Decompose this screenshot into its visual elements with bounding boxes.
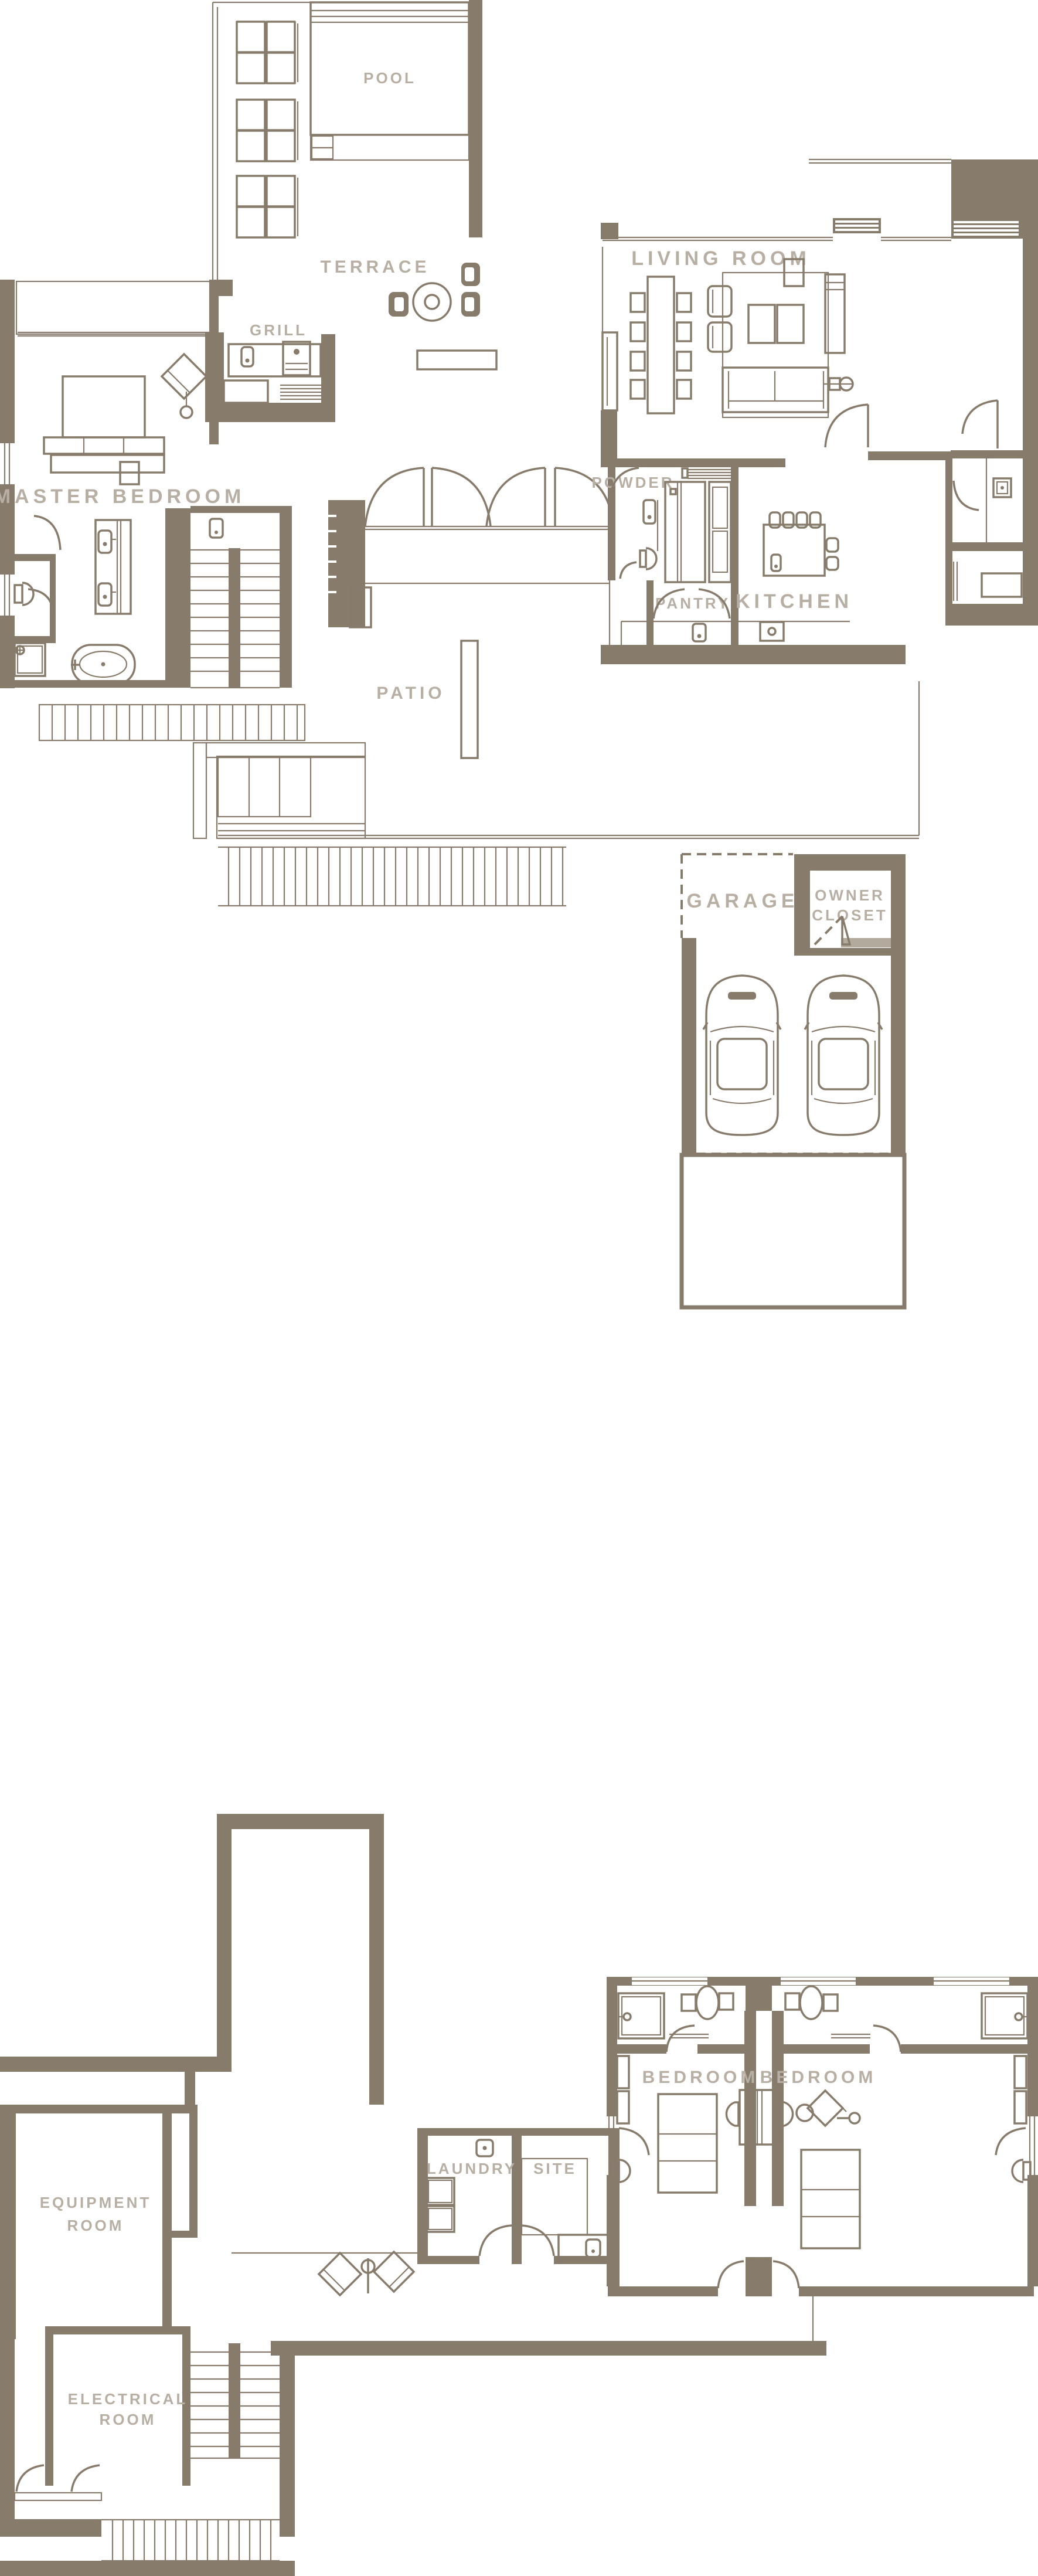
owner-closet-label-line1: OWNER bbox=[815, 886, 885, 904]
owner-closet: OWNER CLOSET bbox=[812, 886, 891, 947]
media-console bbox=[603, 332, 617, 410]
kitchen-island bbox=[764, 525, 825, 576]
light-well bbox=[0, 1814, 384, 2105]
pool: POOL bbox=[311, 2, 469, 160]
bedrooms-block: BEDROOM BEDROOM bbox=[607, 1977, 1038, 2341]
vanity-sink bbox=[800, 1986, 822, 2019]
bed bbox=[658, 2094, 717, 2193]
patio-label: PATIO bbox=[376, 684, 445, 703]
corridor-lounge bbox=[232, 2252, 417, 2295]
stair-to-lower bbox=[217, 756, 365, 838]
counter bbox=[559, 2235, 610, 2258]
driveway bbox=[682, 1155, 904, 1307]
lower-stairs bbox=[190, 2343, 295, 2537]
sink bbox=[586, 2239, 600, 2257]
powder-toilet bbox=[640, 550, 646, 567]
dryer bbox=[426, 2206, 454, 2232]
lounge-corner bbox=[797, 2091, 860, 2126]
armchair bbox=[708, 322, 731, 352]
terrace-table bbox=[413, 283, 451, 321]
pivot-door-arcs bbox=[365, 468, 614, 526]
bedroom-left-label: BEDROOM bbox=[642, 2068, 759, 2087]
electrical-stairs: ELECTRICAL ROOM bbox=[0, 2326, 826, 2576]
master-chair bbox=[162, 354, 206, 418]
kitchen-sink bbox=[693, 624, 706, 641]
window bbox=[781, 1977, 856, 1985]
landing-sink bbox=[210, 519, 223, 538]
lower-level: EQUIPMENT ROOM LAUNDRY SITE bbox=[0, 1814, 1038, 2576]
bed bbox=[801, 2150, 860, 2248]
door-arc bbox=[825, 405, 868, 447]
floor-lamp bbox=[849, 2113, 860, 2123]
terrace: TERRACE bbox=[320, 257, 496, 369]
patio-planter bbox=[461, 641, 478, 758]
pool-right-wall bbox=[469, 0, 482, 237]
living-room: LIVING ROOM bbox=[601, 159, 1038, 626]
equipment-room: EQUIPMENT ROOM bbox=[0, 2105, 198, 2339]
vanity bbox=[96, 520, 131, 614]
door-arc bbox=[962, 400, 998, 448]
powder-pantry-block: POWDER PANTRY bbox=[592, 458, 739, 647]
pool-label: POOL bbox=[363, 69, 416, 87]
ottoman bbox=[797, 2105, 813, 2121]
terrace-bench bbox=[417, 351, 496, 369]
bedroom-right-label: BEDROOM bbox=[760, 2068, 877, 2087]
lounge-chair bbox=[374, 2252, 414, 2292]
window bbox=[0, 443, 15, 484]
shower bbox=[618, 1993, 664, 2038]
master-suite: MASTER BEDROOM bbox=[0, 280, 292, 688]
garage-label: GARAGE bbox=[686, 890, 798, 912]
coffee-table bbox=[777, 305, 804, 343]
steps bbox=[39, 705, 305, 740]
window bbox=[934, 1977, 1009, 1985]
vanity-sink bbox=[696, 1986, 719, 2019]
grill-label: GRILL bbox=[250, 321, 307, 339]
armchair bbox=[708, 286, 731, 317]
car bbox=[805, 976, 882, 1135]
powder-sink bbox=[644, 500, 655, 524]
equipment-room-label-line2: ROOM bbox=[67, 2217, 124, 2234]
laundry-site-block: LAUNDRY SITE bbox=[417, 2128, 620, 2296]
lounge-chairs bbox=[237, 22, 298, 237]
shower bbox=[982, 1993, 1027, 2038]
toilet bbox=[15, 585, 22, 603]
floor-plan-drawing: POOL TERRACE GRILL bbox=[0, 0, 1038, 2576]
powder-label: POWDER bbox=[592, 474, 675, 491]
terrace-label: TERRACE bbox=[320, 257, 430, 277]
desk-chair bbox=[726, 2102, 738, 2126]
master-bedroom-label: MASTER BEDROOM bbox=[0, 485, 245, 508]
main-stairs bbox=[190, 506, 292, 688]
window bbox=[632, 1977, 707, 1985]
lounge-chair bbox=[319, 2253, 361, 2295]
equipment-room-label-line1: EQUIPMENT bbox=[40, 2194, 152, 2211]
master-deck bbox=[16, 281, 210, 334]
coffee-table bbox=[748, 305, 775, 343]
window bbox=[0, 575, 15, 616]
shower-head-icon bbox=[624, 2013, 631, 2020]
shower bbox=[15, 643, 45, 676]
floor-plan-page: POOL TERRACE GRILL bbox=[0, 0, 1038, 2576]
kitchen-label: KITCHEN bbox=[736, 590, 853, 613]
garage-level: GARAGE OWNER CLOSET bbox=[682, 854, 906, 1307]
island-sink bbox=[771, 555, 781, 571]
pool-deck: POOL bbox=[213, 0, 482, 355]
site-label: SITE bbox=[533, 2160, 577, 2177]
right-outer-wall bbox=[1023, 159, 1038, 626]
door-arc bbox=[34, 516, 60, 550]
entry-foyer bbox=[328, 468, 614, 645]
washer bbox=[426, 2178, 454, 2205]
door-arcs bbox=[16, 2465, 100, 2492]
grill-appliance bbox=[283, 342, 310, 375]
equipment-box bbox=[982, 573, 1022, 597]
door-arc bbox=[954, 481, 979, 510]
cooktop bbox=[760, 622, 784, 641]
living-seating bbox=[708, 259, 853, 417]
door-arc bbox=[620, 562, 637, 579]
main-level: POOL TERRACE GRILL bbox=[0, 0, 1038, 906]
laundry-label: LAUNDRY bbox=[427, 2160, 517, 2177]
dining-table bbox=[648, 277, 674, 413]
bathroom bbox=[785, 1986, 1027, 2038]
electrical-room-label-line2: ROOM bbox=[100, 2411, 156, 2428]
grill-sink bbox=[241, 347, 253, 366]
electrical-room-label-line1: ELECTRICAL bbox=[68, 2390, 188, 2408]
master-bed bbox=[44, 376, 164, 484]
car bbox=[703, 976, 781, 1135]
bedroom-door-arcs bbox=[619, 2128, 1026, 2155]
closet bbox=[665, 482, 705, 582]
owner-closet-label-line2: CLOSET bbox=[812, 906, 887, 924]
grill-area: GRILL bbox=[205, 321, 335, 422]
dining-set bbox=[631, 277, 691, 413]
shower-head-icon bbox=[1015, 2013, 1022, 2020]
